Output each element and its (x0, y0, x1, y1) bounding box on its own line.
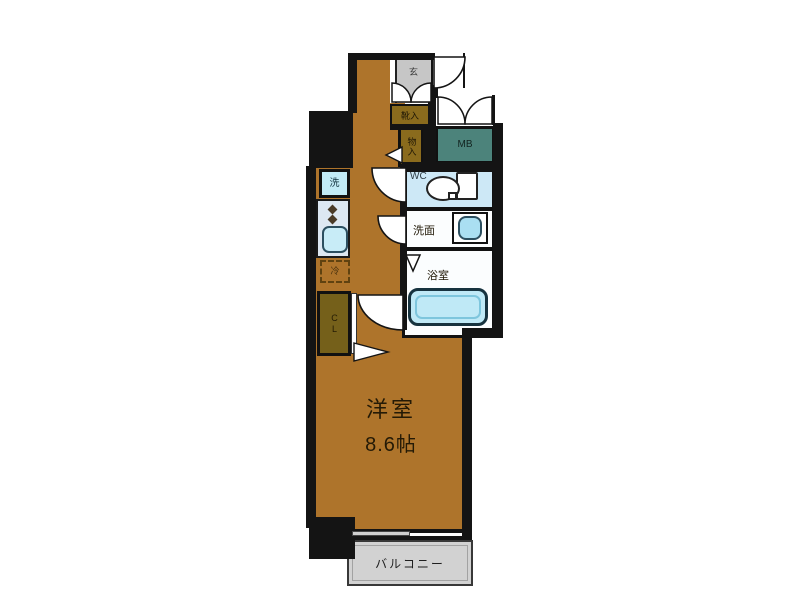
washer-label: 洗 (330, 179, 340, 189)
wc-label: WC (410, 172, 427, 182)
meter-box-label: MB (458, 140, 473, 150)
wall-left-upper (348, 53, 357, 113)
toilet-handle-icon (448, 192, 457, 200)
meter-box: MB (435, 126, 495, 164)
closet: CL (317, 291, 351, 356)
entrance-door-arc (434, 57, 465, 88)
bathtub-icon (408, 288, 488, 326)
meter-box-door-left-arc (438, 97, 465, 124)
balcony-window-pane (352, 531, 410, 536)
storage-label: 物入 (407, 137, 416, 157)
floor-plan-canvas: 玄 靴入 物入 MB WC 洗面 浴室 洗 冷 CL 洋室 8.6帖 (0, 0, 800, 600)
wall-pillar-topleft (309, 111, 353, 168)
washer-space: 洗 (319, 169, 350, 198)
burner-icon (328, 205, 338, 215)
entrance-label: 玄 (409, 68, 418, 77)
wall-entry-door-frame (463, 53, 465, 88)
washroom-label: 洗面 (413, 226, 435, 237)
main-room-size: 8.6帖 (316, 428, 466, 457)
balcony-window-pane (410, 533, 462, 536)
meter-box-door-right-arc (465, 97, 492, 124)
wall-top (348, 53, 435, 60)
kitchen-sink-icon (322, 226, 348, 253)
closet-door-panel (351, 293, 357, 354)
burner-icon (328, 215, 338, 225)
wall-hall-wet-column (400, 165, 407, 330)
balcony: バルコニー (347, 540, 473, 586)
closet-label: CL (330, 313, 339, 335)
washbasin-icon (458, 216, 482, 240)
wall-left (306, 166, 316, 528)
wall-below-meter-box (402, 162, 503, 172)
refrigerator-label: 冷 (330, 267, 339, 276)
bathroom-label: 浴室 (427, 271, 449, 282)
main-room-label: 洋室 8.6帖 (316, 392, 466, 457)
refrigerator-space: 冷 (320, 260, 350, 283)
shoe-cabinet-label: 靴入 (401, 112, 419, 121)
main-room-name: 洋室 (316, 392, 466, 424)
kitchen-counter (316, 199, 350, 258)
wall-entrance-right-line (431, 60, 433, 88)
balcony-label: バルコニー (375, 555, 445, 572)
wall-storage-mb (423, 125, 436, 167)
storage-closet: 物入 (398, 126, 424, 167)
bathtub-inner-line (415, 295, 481, 319)
wall-above-storage (390, 124, 430, 130)
wall-right-upper (493, 123, 503, 338)
wall-mb-door-frame (492, 95, 495, 125)
